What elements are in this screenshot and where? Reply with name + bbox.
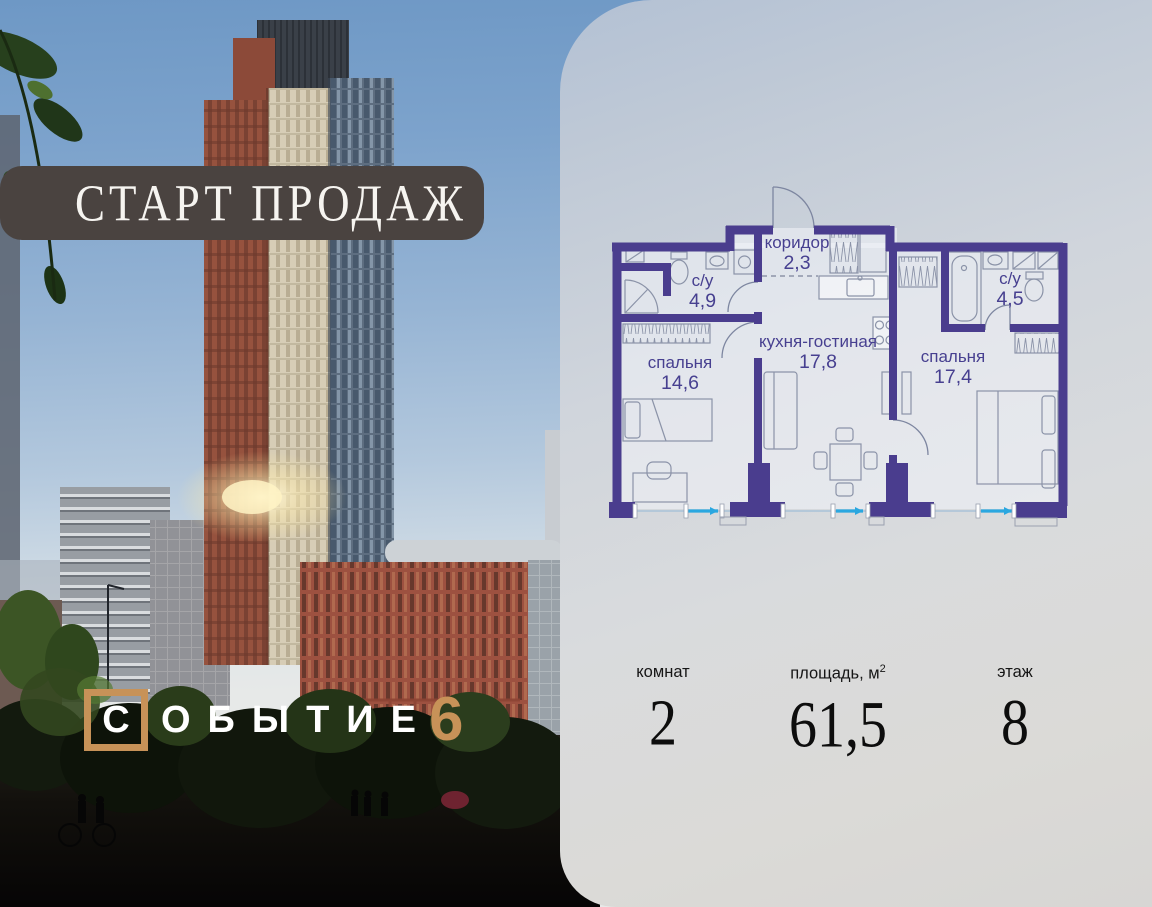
room-label-bedroom-2: спальня 17,4: [893, 348, 1013, 388]
logo-number: 6: [429, 689, 463, 751]
flower-bed: [441, 791, 469, 809]
room-label-bathroom-2: с/у 4,5: [962, 270, 1058, 310]
info-card: с/у 4,9 коридор 2,3 кухня-гостиная 17,8 …: [560, 0, 1152, 907]
stat-rooms-value: 2: [573, 690, 753, 756]
project-logo: С ОБЫТИЕ 6: [84, 688, 463, 752]
stat-area-value: 61,5: [748, 692, 928, 758]
stat-floor-value: 8: [925, 690, 1105, 756]
logo-first-letter: С: [102, 701, 129, 739]
floor-plan: [560, 0, 1152, 907]
stat-area-sup: 2: [880, 663, 886, 675]
room-label-corridor: коридор 2,3: [747, 234, 847, 274]
stat-floor-label: этаж: [997, 663, 1033, 681]
start-sales-banner: СТАРТ ПРОДАЖ: [0, 166, 484, 240]
room-label-bedroom-1: спальня 14,6: [620, 354, 740, 394]
banner-label: СТАРТ ПРОДАЖ: [75, 173, 467, 233]
room-label-bathroom-1: с/у 4,9: [655, 272, 750, 312]
stat-rooms-label: комнат: [636, 663, 689, 681]
room-label-kitchen-living: кухня-гостиная 17,8: [728, 333, 908, 373]
stat-rooms: комнат 2: [573, 663, 753, 746]
stat-area-label: площадь, м: [790, 665, 879, 683]
stat-floor: этаж 8: [925, 663, 1105, 746]
logo-wordmark: ОБЫТИЕ: [161, 701, 433, 739]
promo-screen: СТАРТ ПРОДАЖ С ОБЫТИЕ 6: [0, 0, 1152, 907]
logo-frame: С: [84, 689, 148, 751]
stat-area: площадь, м2 61,5: [748, 663, 928, 748]
